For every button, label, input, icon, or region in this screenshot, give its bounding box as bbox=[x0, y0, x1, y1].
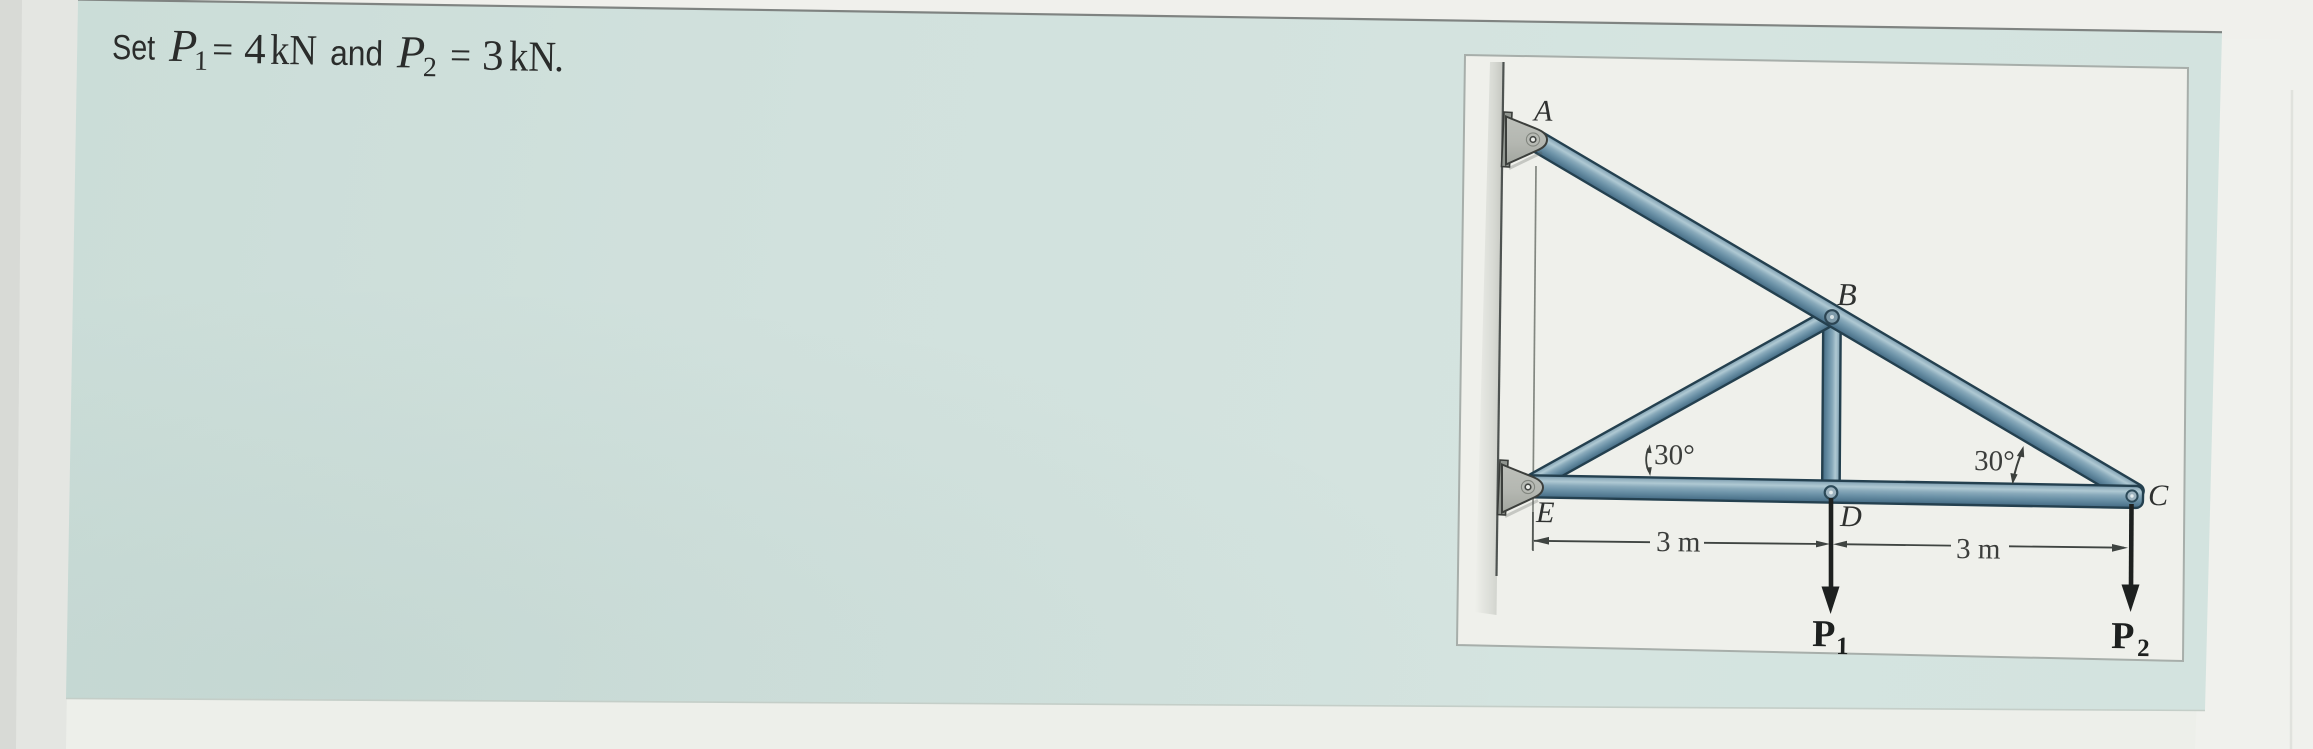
svg-text:P: P bbox=[2111, 615, 2135, 657]
svg-text:P: P bbox=[396, 26, 426, 77]
svg-text:=: = bbox=[212, 26, 234, 71]
svg-text:30°: 30° bbox=[1654, 439, 1695, 472]
svg-text:A: A bbox=[1532, 94, 1553, 127]
svg-text:B: B bbox=[1837, 276, 1857, 312]
svg-text:kN: kN bbox=[270, 27, 318, 75]
svg-text:Set: Set bbox=[112, 28, 156, 68]
svg-text:30°: 30° bbox=[1974, 445, 2015, 478]
svg-text:and: and bbox=[330, 34, 384, 74]
svg-text:4: 4 bbox=[244, 26, 266, 73]
svg-text:3: 3 bbox=[482, 32, 504, 79]
svg-text:2: 2 bbox=[423, 52, 437, 83]
svg-text:=: = bbox=[450, 33, 472, 78]
svg-text:E: E bbox=[1535, 496, 1555, 529]
svg-text:2: 2 bbox=[2137, 635, 2150, 662]
svg-text:P: P bbox=[1812, 613, 1836, 655]
svg-text:kN: kN bbox=[509, 33, 557, 81]
svg-text:1: 1 bbox=[194, 46, 208, 77]
svg-text:3 m: 3 m bbox=[1956, 533, 2001, 566]
svg-text:.: . bbox=[554, 35, 565, 80]
svg-text:3 m: 3 m bbox=[1656, 526, 1701, 559]
svg-text:C: C bbox=[2148, 479, 2169, 512]
svg-text:1: 1 bbox=[1836, 633, 1849, 660]
svg-text:D: D bbox=[1839, 500, 1862, 533]
